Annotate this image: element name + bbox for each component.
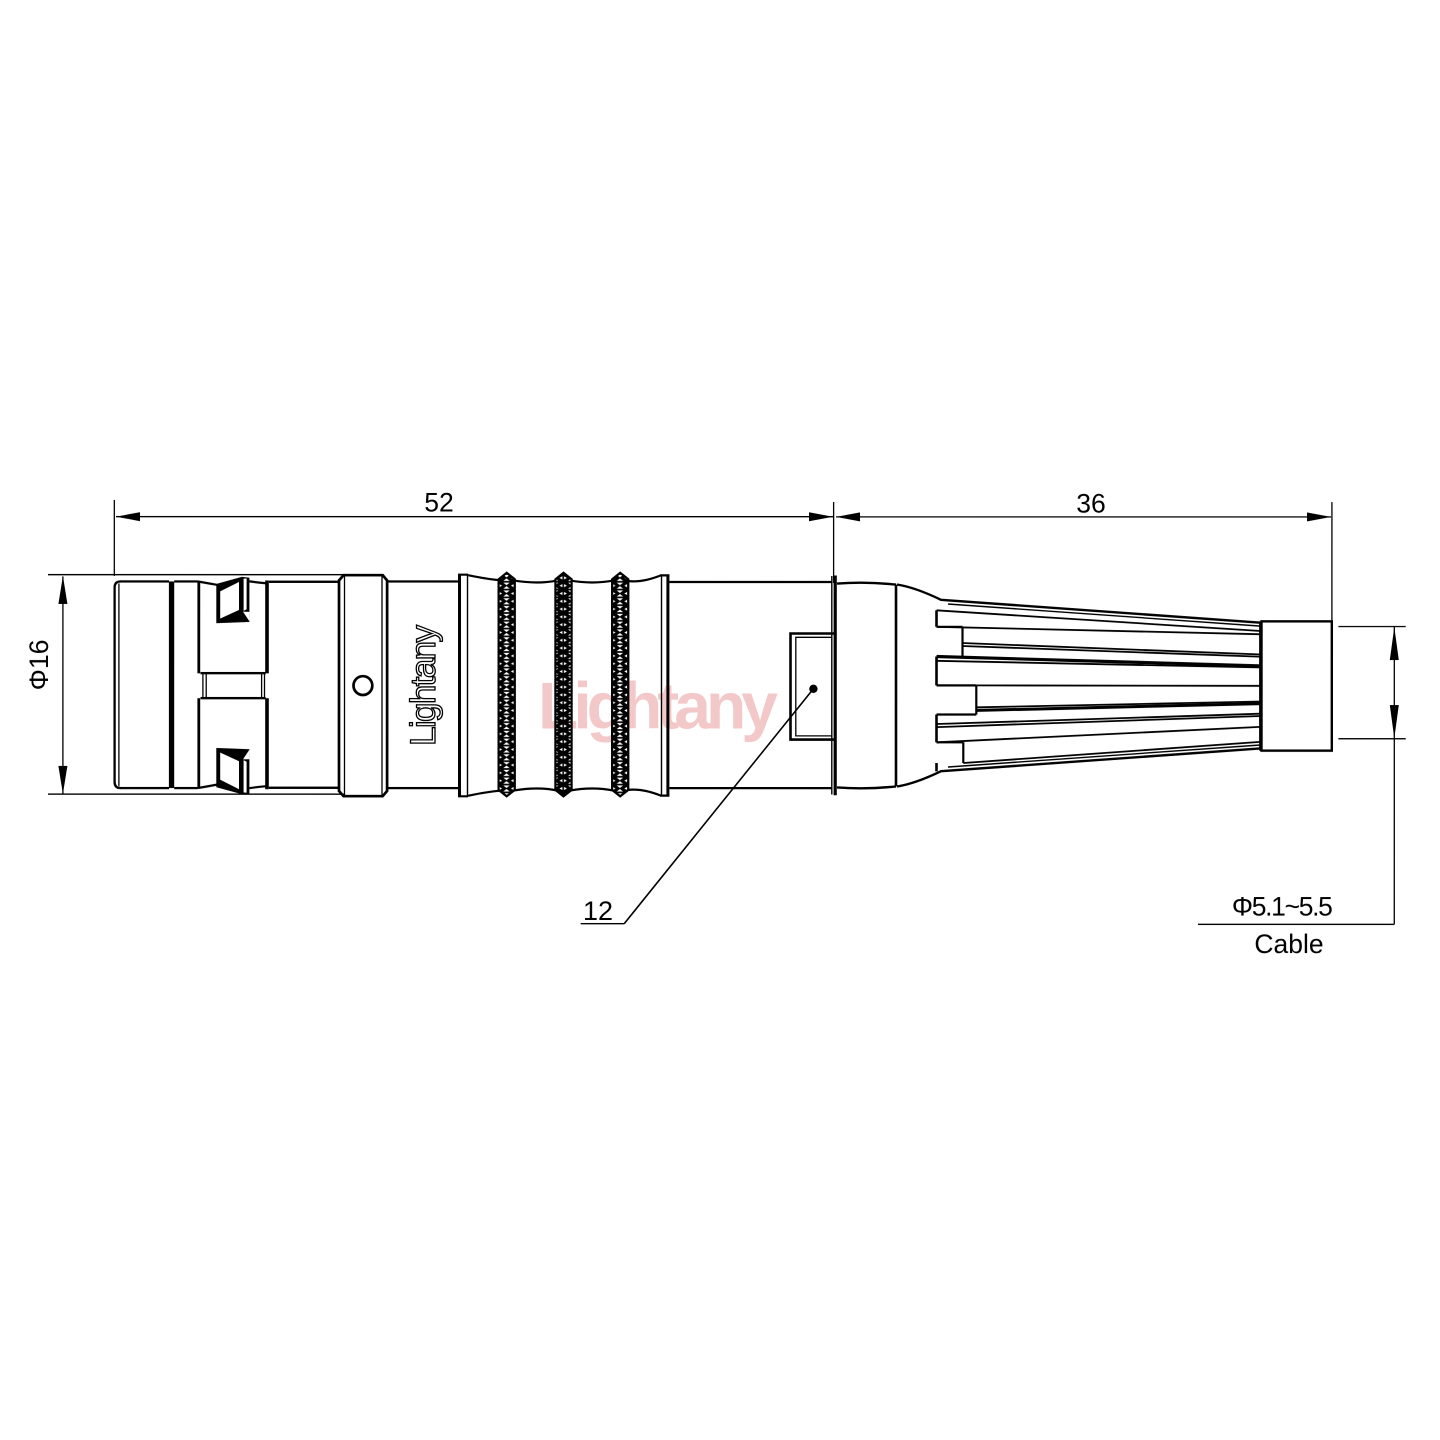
svg-text:Φ5.1~5.5: Φ5.1~5.5: [1232, 892, 1333, 922]
svg-text:12: 12: [583, 896, 613, 926]
svg-text:Lightany: Lightany: [538, 668, 778, 742]
svg-text:Φ16: Φ16: [24, 640, 54, 691]
svg-text:52: 52: [424, 487, 453, 517]
svg-text:Cable: Cable: [1254, 929, 1323, 959]
svg-text:36: 36: [1076, 488, 1105, 518]
svg-text:Lightany: Lightany: [404, 624, 443, 746]
